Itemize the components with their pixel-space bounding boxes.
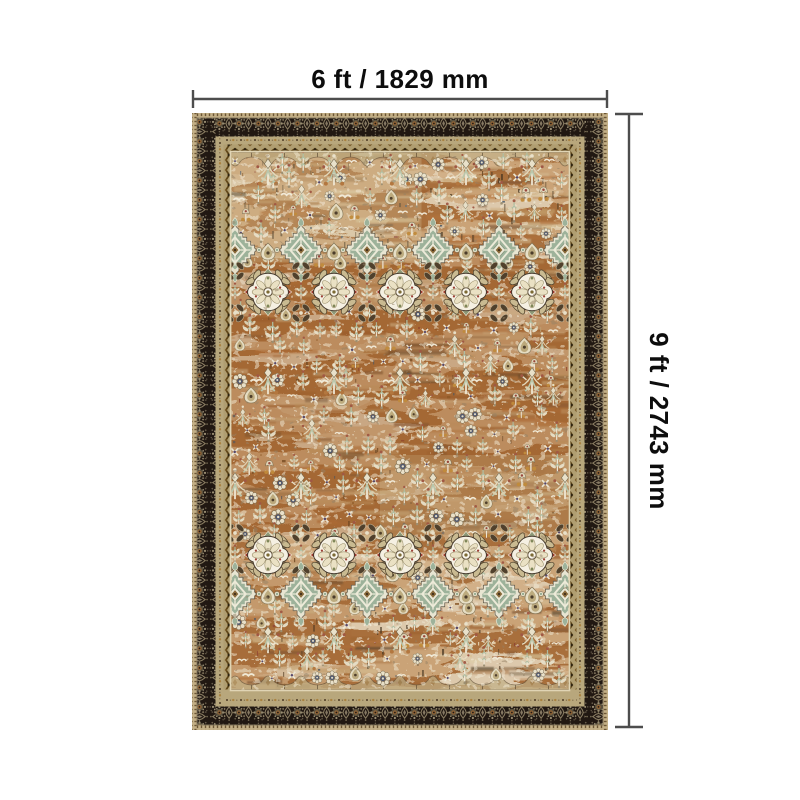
svg-text:6 ft / 1829 mm: 6 ft / 1829 mm — [311, 64, 489, 94]
svg-text:9 ft / 2743 mm: 9 ft / 2743 mm — [644, 332, 674, 510]
